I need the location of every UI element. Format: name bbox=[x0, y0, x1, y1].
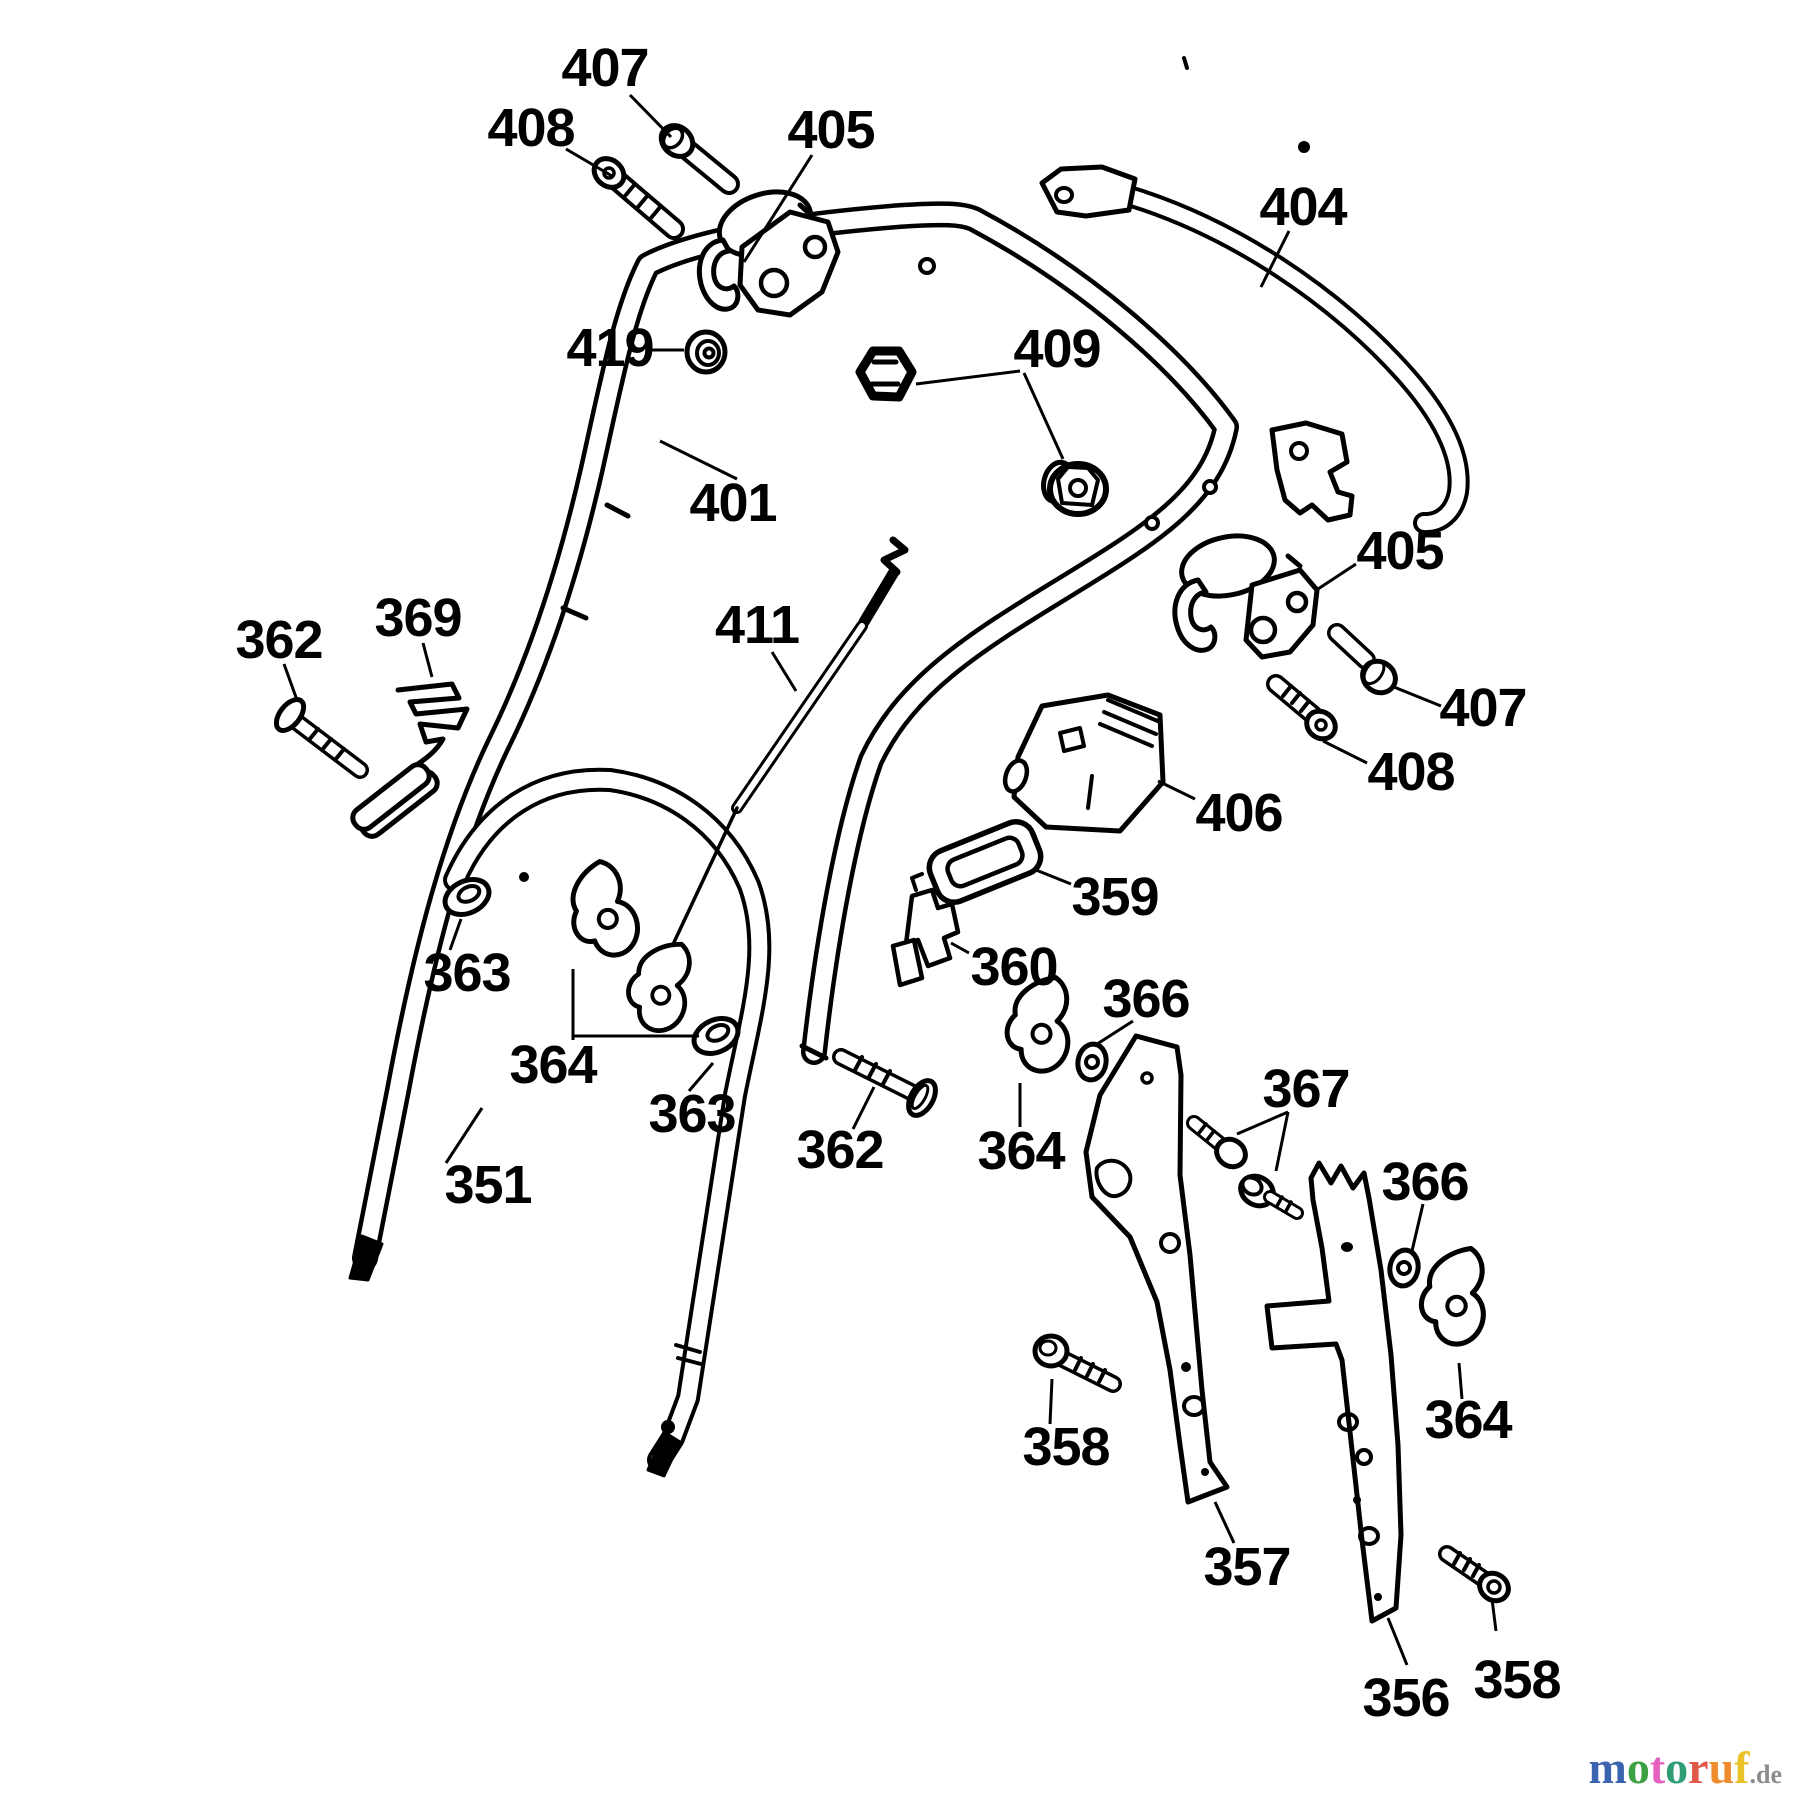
leader-line-15 bbox=[1036, 870, 1071, 884]
leader-line-8 bbox=[772, 652, 796, 691]
leader-line-6 bbox=[1024, 373, 1063, 459]
part-label-409: 409 bbox=[1013, 318, 1100, 380]
leader-line-31 bbox=[1492, 1599, 1496, 1631]
leader-line-5 bbox=[916, 371, 1020, 384]
part-label-405-1: 405 bbox=[787, 99, 874, 161]
part-label-358-1: 358 bbox=[1022, 1416, 1109, 1478]
part-label-363-1: 363 bbox=[423, 942, 510, 1004]
watermark-text: motoruf bbox=[1589, 1742, 1750, 1793]
leader-line-30 bbox=[1388, 1618, 1407, 1665]
part-label-408-1: 408 bbox=[487, 97, 574, 159]
watermark-letter-6: f bbox=[1734, 1742, 1749, 1793]
part-label-419: 419 bbox=[566, 317, 653, 379]
leader-line-0 bbox=[630, 95, 671, 137]
watermark-logo: motoruf.de bbox=[1589, 1741, 1783, 1794]
watermark-letter-2: t bbox=[1650, 1742, 1665, 1793]
leader-line-12 bbox=[1394, 687, 1441, 706]
part-label-366-2: 366 bbox=[1381, 1151, 1468, 1213]
part-label-364-2: 364 bbox=[977, 1120, 1064, 1182]
part-label-408-2: 408 bbox=[1367, 741, 1454, 803]
part-label-362-1: 362 bbox=[235, 609, 322, 671]
watermark-suffix: .de bbox=[1750, 1760, 1783, 1789]
part-label-356: 356 bbox=[1362, 1667, 1449, 1729]
part-label-369: 369 bbox=[374, 587, 461, 649]
leader-line-13 bbox=[1323, 741, 1367, 763]
leader-line-11 bbox=[1318, 564, 1356, 589]
part-label-404: 404 bbox=[1259, 176, 1346, 238]
part-label-363-2: 363 bbox=[648, 1083, 735, 1145]
part-label-351: 351 bbox=[444, 1154, 531, 1216]
leader-line-16 bbox=[951, 943, 969, 953]
watermark-letter-1: o bbox=[1627, 1742, 1650, 1793]
part-label-359: 359 bbox=[1071, 866, 1158, 928]
part-label-358-2: 358 bbox=[1473, 1649, 1560, 1711]
leader-line-4 bbox=[1261, 231, 1289, 287]
part-label-407-1: 407 bbox=[561, 37, 648, 99]
part-label-411: 411 bbox=[715, 594, 799, 656]
part-label-362-2: 362 bbox=[796, 1119, 883, 1181]
leader-line-14 bbox=[1158, 781, 1195, 799]
leader-line-25 bbox=[1276, 1112, 1288, 1171]
watermark-letter-3: o bbox=[1665, 1742, 1688, 1793]
parts-diagram: 4074084054194044094014113623694054074084… bbox=[0, 0, 1800, 1800]
part-label-360: 360 bbox=[970, 936, 1057, 998]
watermark-letter-5: u bbox=[1709, 1742, 1735, 1793]
watermark-letter-0: m bbox=[1589, 1742, 1627, 1793]
part-label-367: 367 bbox=[1262, 1058, 1349, 1120]
part-label-406: 406 bbox=[1195, 782, 1282, 844]
leader-line-2 bbox=[744, 155, 812, 262]
leader-lines bbox=[0, 0, 1800, 1800]
part-label-357: 357 bbox=[1203, 1536, 1290, 1598]
part-label-401: 401 bbox=[689, 472, 776, 534]
part-label-364-1: 364 bbox=[509, 1034, 596, 1096]
part-label-407-2: 407 bbox=[1439, 677, 1526, 739]
part-label-405-2: 405 bbox=[1356, 520, 1443, 582]
watermark-letter-4: r bbox=[1688, 1742, 1708, 1793]
part-label-366-1: 366 bbox=[1102, 968, 1189, 1030]
part-label-364-3: 364 bbox=[1424, 1389, 1511, 1451]
